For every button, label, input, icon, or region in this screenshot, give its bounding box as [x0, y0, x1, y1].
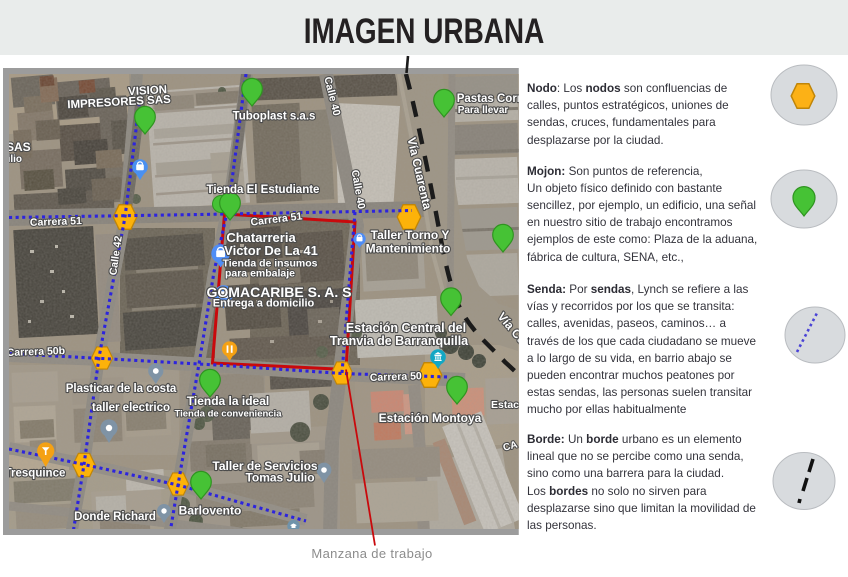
- svg-text:Pastas Corr: Pastas Corr: [457, 93, 522, 105]
- svg-text:Tuboplast s.a.s: Tuboplast s.a.s: [233, 111, 316, 123]
- svg-text:Estación Montoya: Estación Montoya: [379, 411, 482, 425]
- svg-text:Tomas Julio: Tomas Julio: [245, 471, 314, 485]
- svg-text:para embalaje: para embalaje: [225, 268, 295, 280]
- svg-text:Estac: Estac: [491, 399, 519, 411]
- svg-text:Tienda El Estudiante: Tienda El Estudiante: [207, 184, 320, 196]
- svg-text:Tienda de conveniencia: Tienda de conveniencia: [174, 409, 282, 420]
- svg-text:Tranvia de Barranquilla: Tranvia de Barranquilla: [330, 334, 469, 348]
- svg-text:Mantenimiento: Mantenimiento: [366, 242, 451, 256]
- svg-text:Taller Torno Y: Taller Torno Y: [371, 228, 450, 242]
- svg-text:Entrega a domicilio: Entrega a domicilio: [213, 298, 315, 310]
- svg-text:Estación Central del: Estación Central del: [346, 321, 466, 335]
- svg-text:Plasticar de la costa: Plasticar de la costa: [66, 383, 177, 395]
- svg-text:Para llevar: Para llevar: [458, 105, 509, 116]
- svg-text:taller electrico: taller electrico: [92, 402, 170, 414]
- svg-text:Carrera 50b: Carrera 50b: [7, 345, 66, 359]
- svg-text:Donde Richard: Donde Richard: [74, 511, 156, 523]
- svg-text:Carrera 50: Carrera 50: [370, 370, 423, 384]
- svg-text:Tienda la ideal: Tienda la ideal: [187, 394, 269, 408]
- svg-text:Tresquince: Tresquince: [5, 468, 66, 480]
- svg-text:Barlovento: Barlovento: [179, 504, 242, 518]
- svg-text:Carrera 51: Carrera 51: [30, 215, 83, 229]
- svg-text:SAS: SAS: [6, 140, 31, 154]
- svg-text:Victor De La 41: Victor De La 41: [224, 243, 318, 258]
